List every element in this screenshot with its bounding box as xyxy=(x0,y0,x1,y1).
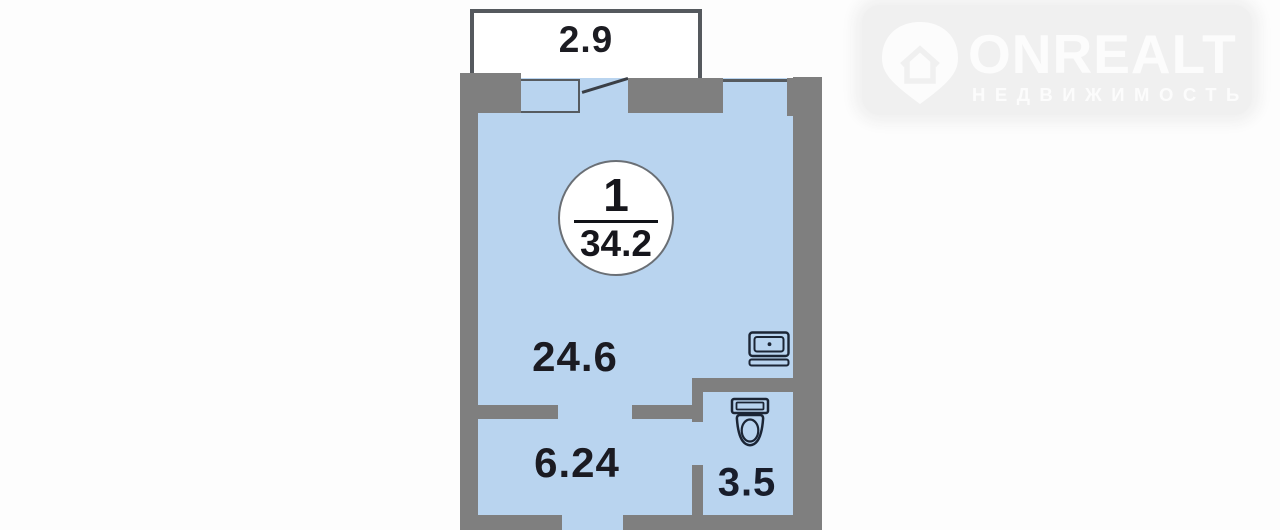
wall-bottom-right xyxy=(623,515,822,530)
bathroom-wall-top xyxy=(692,378,794,392)
wall-top-left xyxy=(460,73,521,113)
wall-right xyxy=(793,77,822,530)
wall-top-middle xyxy=(628,78,723,113)
living-room-area-label: 24.6 xyxy=(532,333,618,381)
unit-info-badge: 1 34.2 xyxy=(558,160,674,276)
wall-top-right xyxy=(787,78,822,116)
balcony-area-label: 2.9 xyxy=(559,19,613,61)
wall-left xyxy=(460,75,478,530)
hallway-area-label: 6.24 xyxy=(534,439,620,487)
unit-rooms-count: 1 xyxy=(603,174,629,218)
bathroom-area-label: 3.5 xyxy=(718,461,777,506)
house-location-pin-icon xyxy=(878,20,962,106)
window-left xyxy=(516,79,580,113)
partition-hall-left xyxy=(478,405,558,419)
partition-hall-right xyxy=(632,405,692,419)
wall-bottom-left xyxy=(460,515,562,530)
floorplan-canvas: ONREALT НЕДВИЖИМОСТЬ 2.9 1 34.2 24.6 6.2… xyxy=(0,0,1280,530)
toilet-icon xyxy=(730,397,770,457)
balcony-outline: 2.9 xyxy=(470,9,702,78)
unit-total-area: 34.2 xyxy=(580,225,652,262)
watermark-subtitle: НЕДВИЖИМОСТЬ xyxy=(972,84,1249,106)
bathroom-wall-left-upper xyxy=(692,378,703,422)
entrance-opening xyxy=(562,515,623,530)
bathroom-wall-left-lower xyxy=(692,465,703,515)
sink-icon xyxy=(748,331,790,367)
watermark-brand: ONREALT xyxy=(968,22,1237,86)
